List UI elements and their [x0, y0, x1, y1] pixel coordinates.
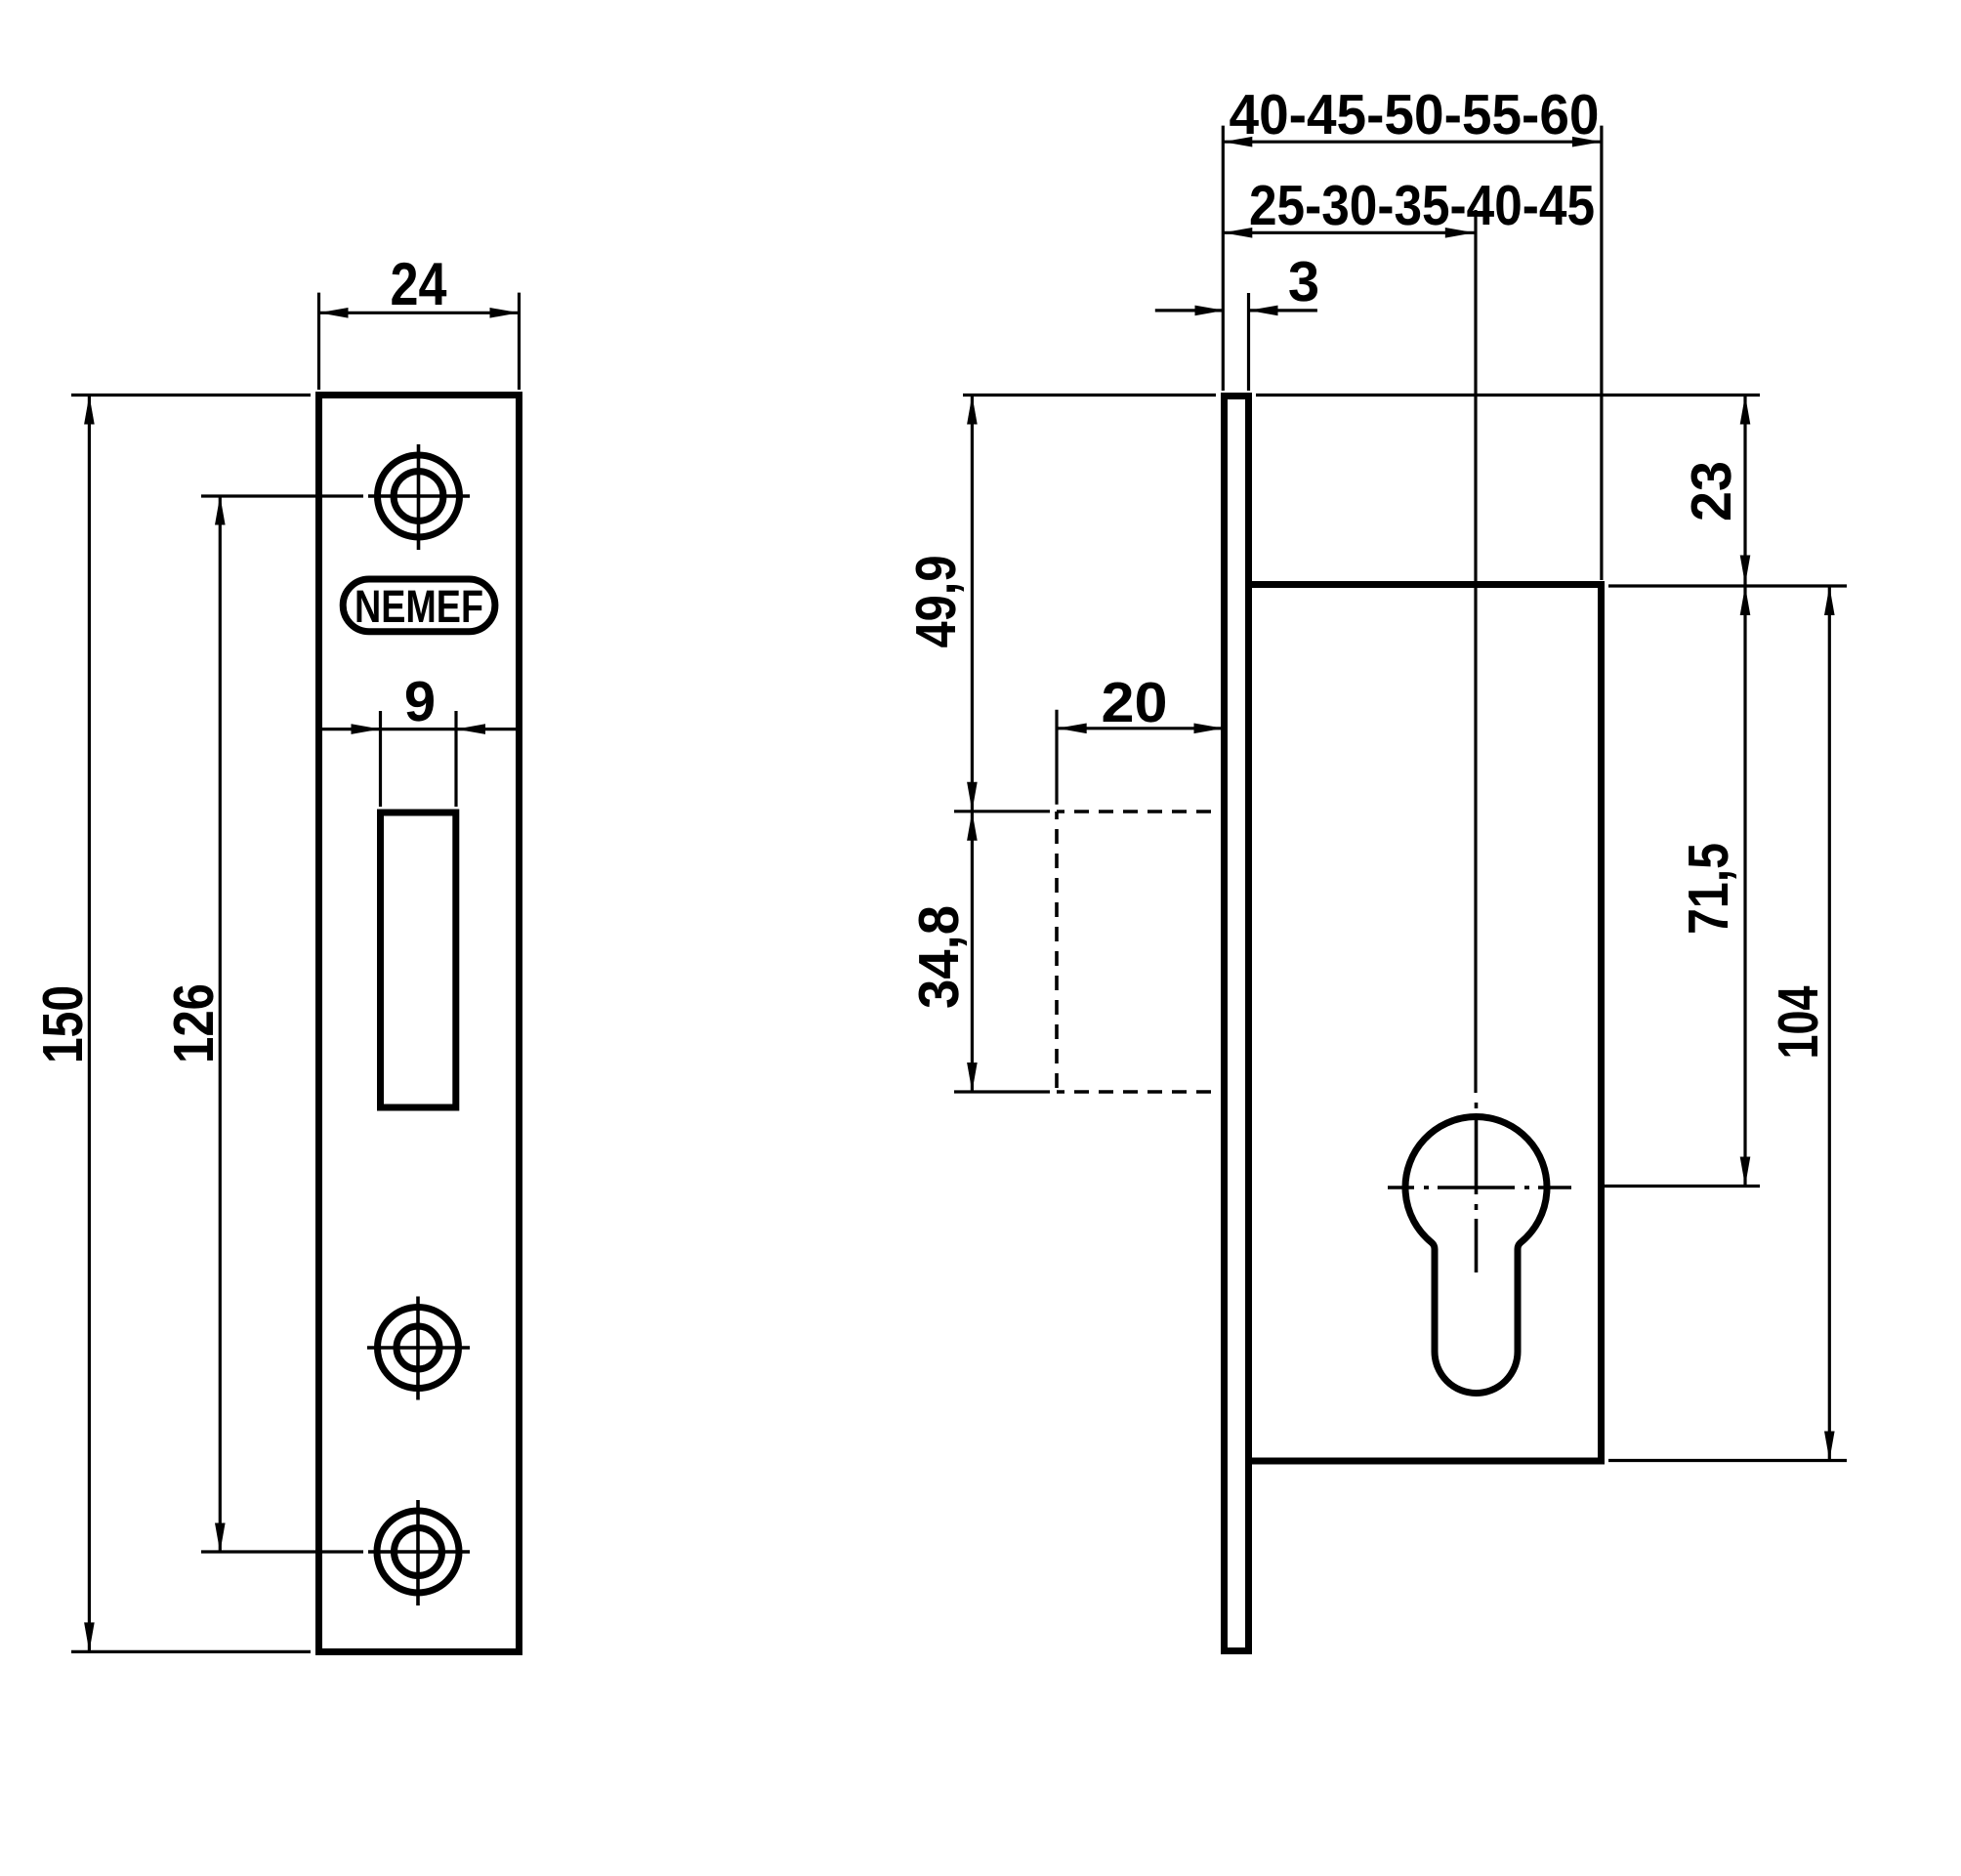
svg-text:104: 104: [1767, 986, 1830, 1060]
svg-text:150: 150: [31, 985, 95, 1063]
svg-text:34,8: 34,8: [907, 905, 971, 1009]
svg-text:24: 24: [391, 251, 447, 318]
svg-text:49,9: 49,9: [904, 556, 968, 648]
svg-text:25-30-35-40-45: 25-30-35-40-45: [1249, 174, 1595, 237]
svg-text:126: 126: [162, 983, 226, 1063]
svg-text:3: 3: [1288, 250, 1319, 313]
svg-text:23: 23: [1680, 461, 1743, 521]
svg-text:40-45-50-55-60: 40-45-50-55-60: [1230, 83, 1600, 146]
svg-text:9: 9: [404, 670, 436, 733]
svg-text:NEMEF: NEMEF: [355, 580, 483, 632]
svg-text:20: 20: [1102, 671, 1168, 734]
svg-text:71,5: 71,5: [1677, 843, 1740, 935]
